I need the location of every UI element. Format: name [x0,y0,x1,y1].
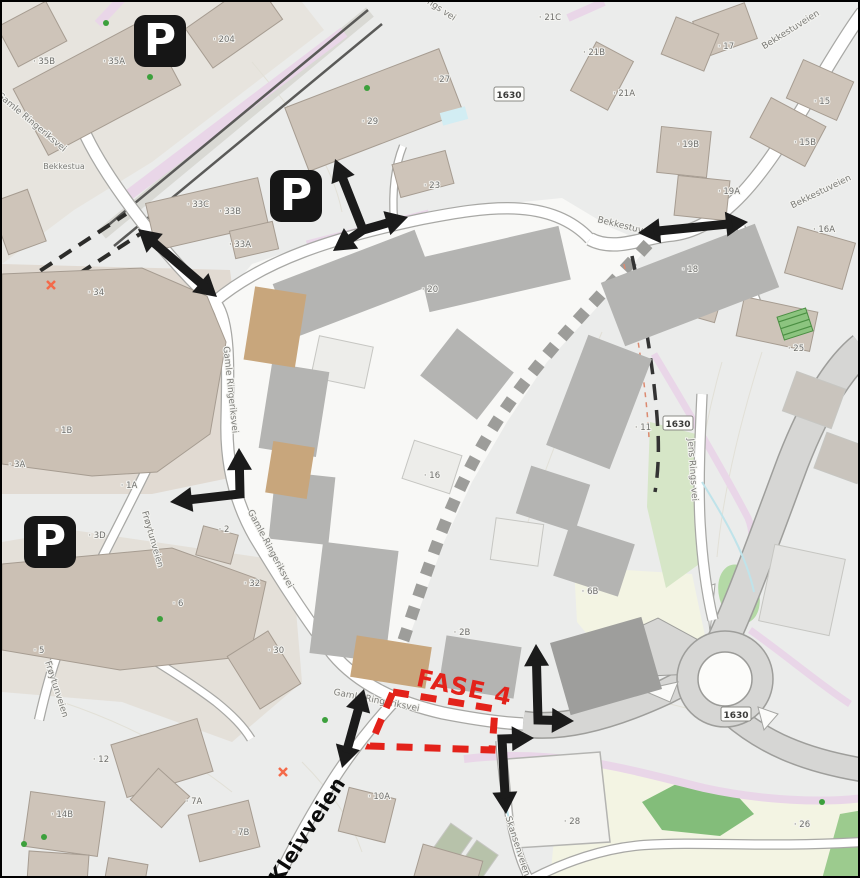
road-number-shield: 1630 [494,87,524,101]
shield-number: 1630 [496,91,521,101]
house-number-label: · 3A [9,460,26,470]
large-building [2,268,226,476]
building [674,175,730,220]
house-number-label: · 35A [103,57,125,67]
parking-symbol: P [270,170,322,222]
house-number-label: · 16A [813,225,835,235]
house-number-label: · 21B [583,48,605,58]
house-number-label: · 6 [173,599,184,609]
house-number-label: · 25 [788,344,804,354]
house-number-label: · 19B [677,140,699,150]
house-number-label: · 18 [682,265,698,275]
house-number-label: · 6B [582,587,599,597]
house-number-label: · 1B [56,426,73,436]
house-number-label: · 28 [564,817,580,827]
building [27,851,89,878]
house-number-label: · 15 [814,97,830,107]
house-number-label: · 15B [794,138,816,148]
house-number-label: · 14B [51,810,73,820]
tree-dot [157,616,163,622]
tree-dot [103,20,109,26]
house-number-label: · 33C [187,200,209,210]
house-number-label: · 26 [794,820,810,830]
house-number-label: · 17 [718,42,734,52]
street-label: Bekkestua [43,162,85,171]
road-number-shield: 1630 [721,707,751,721]
construction-ground [265,441,315,499]
house-number-label: · 19A [718,187,740,197]
house-number-label: · 35B [33,57,55,67]
house-number-label: · 2 [219,525,230,535]
house-number-label: · 23 [424,181,440,191]
faint-building [759,544,846,635]
house-number-label: · 7B [233,828,250,838]
parking-lot [507,752,610,848]
house-number-label: · 7A [186,797,203,807]
house-number-label: · 21A [613,89,635,99]
tree-dot [21,841,27,847]
shield-number: 1630 [665,420,690,430]
house-number-label: · 33B [219,207,241,217]
tree-dot [819,799,825,805]
shield-number: 1630 [723,711,748,721]
house-number-label: · 204 [213,35,235,45]
road-number-shield: 1630 [663,416,693,430]
house-number-label: · 1A [121,481,138,491]
house-number-label: · 29 [362,117,378,127]
house-number-label: · 30 [268,646,284,656]
house-number-label: · 32 [244,579,260,589]
faint-building [490,518,543,566]
house-number-label: · 10A [368,792,390,802]
house-number-label: · 11 [635,423,651,433]
house-number-label: · 2B [454,628,471,638]
house-number-label: · 5 [34,646,45,656]
house-number-label: · 33A [229,240,251,250]
tree-dot [364,85,370,91]
building [23,792,105,857]
construction-phase-map: Gamle RingeriksveiBekkestuaGamle Ringeri… [0,0,860,878]
parking-symbol: P [134,15,186,67]
map-canvas: Gamle RingeriksveiBekkestuaGamle Ringeri… [2,2,860,878]
house-number-label: · 16 [424,471,440,481]
tree-dot [147,74,153,80]
house-number-label: · 27 [434,75,450,85]
building [657,127,712,178]
tree-dot [41,834,47,840]
house-number-label: · 12 [93,755,109,765]
roundabout-island [698,652,752,706]
house-number-label: · 34 [88,288,104,298]
house-number-label: · 20 [422,285,438,295]
parking-symbol: P [24,516,76,568]
house-number-label: · 21C [539,13,561,23]
house-number-label: · 3D [88,531,106,541]
tree-dot [322,717,328,723]
